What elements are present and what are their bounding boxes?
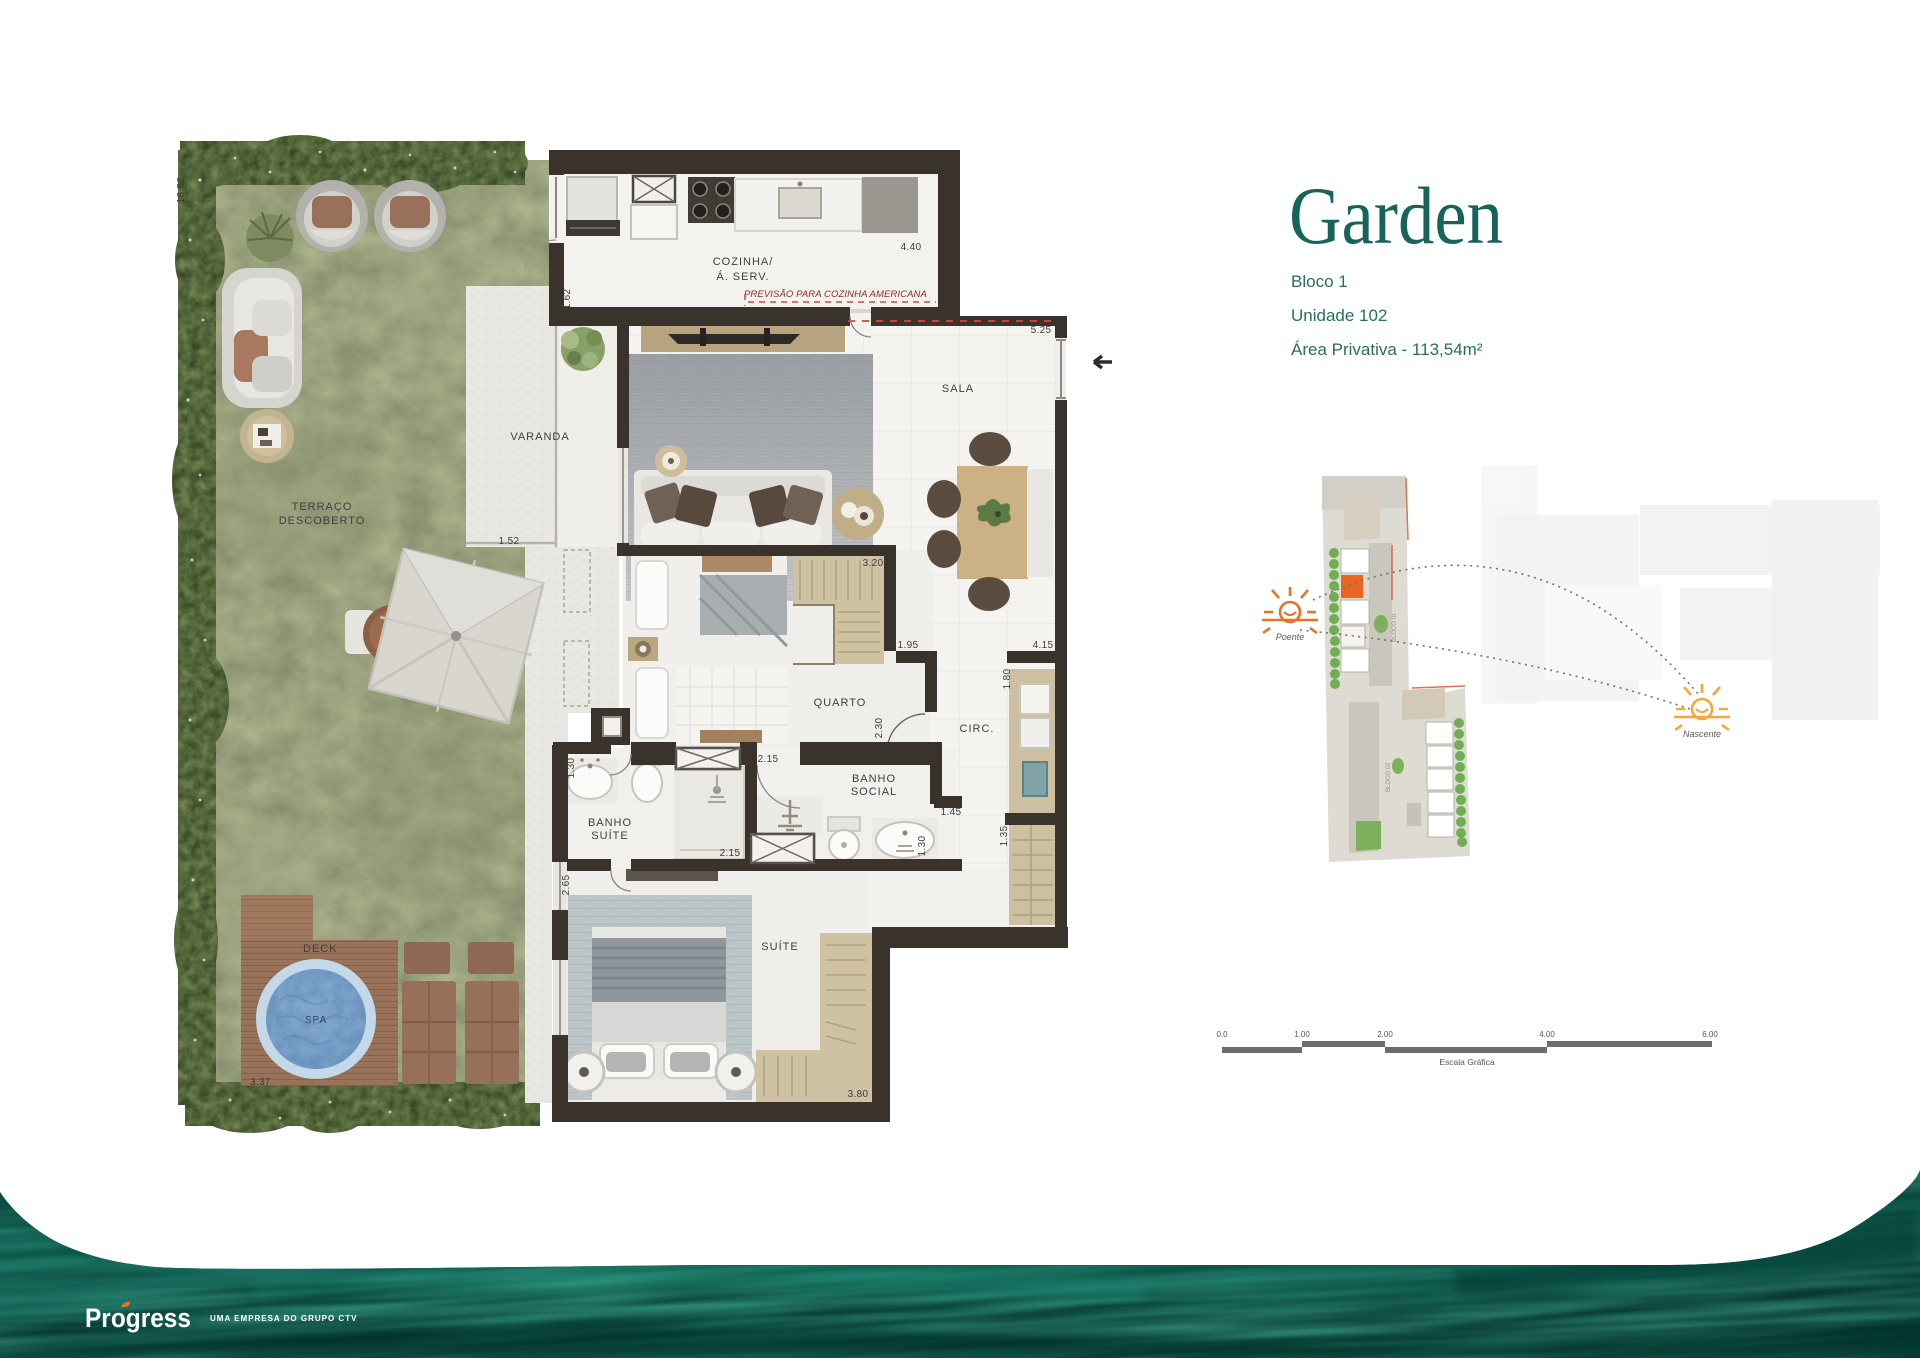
svg-text:BANHO: BANHO [588, 817, 632, 829]
svg-text:BLOCO 02: BLOCO 02 [1386, 762, 1392, 792]
svg-text:1.62: 1.62 [562, 289, 573, 310]
svg-text:2.75: 2.75 [621, 331, 632, 352]
svg-text:4.40: 4.40 [901, 242, 922, 253]
svg-text:Unidade 102: Unidade 102 [1291, 306, 1387, 325]
svg-text:2.65: 2.65 [561, 875, 572, 896]
svg-text:4.15: 4.15 [1033, 640, 1054, 651]
svg-text:3.37: 3.37 [250, 1077, 271, 1088]
svg-text:Área Privativa - 113,54m²: Área Privativa - 113,54m² [1291, 340, 1483, 359]
svg-text:5.25: 5.25 [1031, 325, 1052, 336]
svg-text:18.52: 18.52 [176, 177, 187, 204]
svg-text:Poente: Poente [1276, 632, 1305, 642]
svg-text:VARANDA: VARANDA [510, 431, 569, 443]
svg-text:Garden: Garden [1289, 170, 1503, 261]
svg-text:BANHO: BANHO [852, 773, 896, 785]
svg-text:1.80: 1.80 [1002, 669, 1013, 690]
svg-text:COZINHA/: COZINHA/ [713, 256, 774, 268]
svg-text:DECK: DECK [303, 943, 338, 955]
svg-text:SUÍTE: SUÍTE [761, 940, 798, 953]
svg-text:Progress: Progress [85, 1303, 191, 1333]
svg-text:CIRC.: CIRC. [960, 723, 995, 735]
svg-text:SALA: SALA [942, 383, 974, 395]
svg-text:TERRAÇO: TERRAÇO [292, 501, 353, 513]
svg-text:Escala Gráfica: Escala Gráfica [1439, 1057, 1495, 1067]
svg-text:UMA EMPRESA DO GRUPO CTV: UMA EMPRESA DO GRUPO CTV [210, 1314, 357, 1323]
svg-text:2.15: 2.15 [720, 848, 741, 859]
svg-text:DESCOBERTO: DESCOBERTO [279, 515, 366, 527]
svg-text:1.95: 1.95 [898, 640, 919, 651]
svg-text:SUÍTE: SUÍTE [591, 829, 628, 842]
svg-text:6.00: 6.00 [1702, 1030, 1718, 1039]
svg-text:1.35: 1.35 [999, 826, 1010, 847]
svg-text:PREVISÃO PARA COZINHA AMERICAN: PREVISÃO PARA COZINHA AMERICANA [744, 289, 927, 300]
svg-text:SOCIAL: SOCIAL [851, 786, 897, 798]
svg-text:Bloco 1: Bloco 1 [1291, 272, 1348, 291]
svg-text:1.45: 1.45 [941, 807, 962, 818]
svg-text:Nascente: Nascente [1683, 729, 1721, 739]
svg-text:2.15: 2.15 [758, 754, 779, 765]
svg-text:QUARTO: QUARTO [814, 697, 867, 709]
svg-text:2.30: 2.30 [874, 718, 885, 739]
svg-text:1.30: 1.30 [566, 758, 577, 779]
svg-text:3.80: 3.80 [848, 1089, 869, 1100]
svg-text:Á. SERV.: Á. SERV. [716, 270, 769, 283]
svg-text:SPA: SPA [305, 1015, 327, 1026]
svg-text:2.00: 2.00 [1377, 1030, 1393, 1039]
svg-text:1.52: 1.52 [499, 536, 520, 547]
svg-text:BLOCO 01: BLOCO 01 [1392, 612, 1398, 642]
svg-text:4.00: 4.00 [1539, 1030, 1555, 1039]
svg-text:0.0: 0.0 [1216, 1030, 1228, 1039]
svg-text:3.20: 3.20 [863, 558, 884, 569]
svg-text:1.30: 1.30 [917, 836, 928, 857]
svg-text:1.00: 1.00 [1294, 1030, 1310, 1039]
